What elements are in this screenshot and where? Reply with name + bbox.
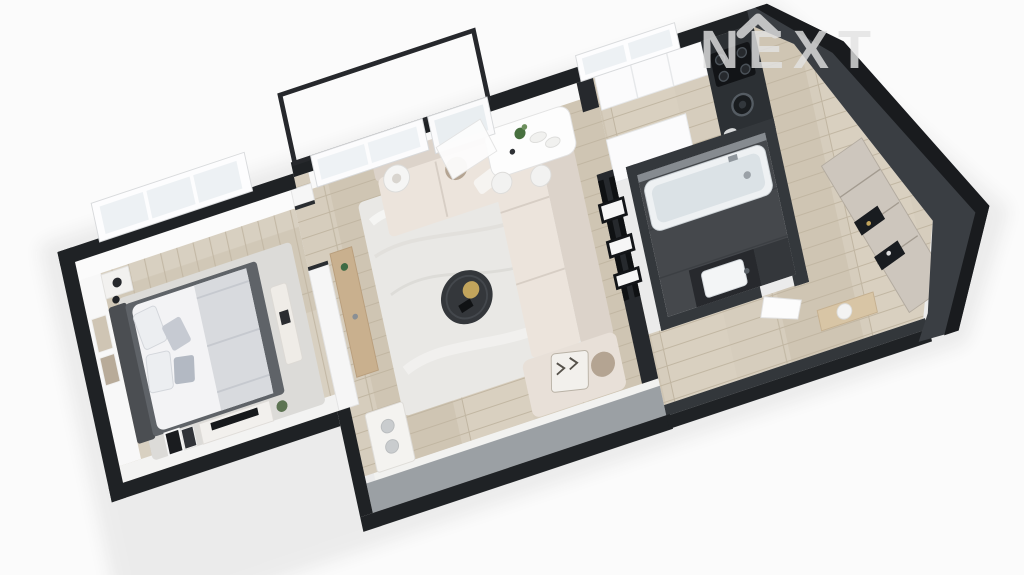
floor-plan-render: NEXT	[0, 0, 1024, 575]
bed-pillow	[146, 350, 174, 393]
patterned-pillow	[551, 350, 588, 393]
accent-pillow	[174, 355, 195, 385]
watermark-text: NEXT	[700, 20, 880, 80]
watermark: NEXT	[700, 18, 880, 80]
floor-plan-image: NEXT	[0, 0, 1024, 575]
